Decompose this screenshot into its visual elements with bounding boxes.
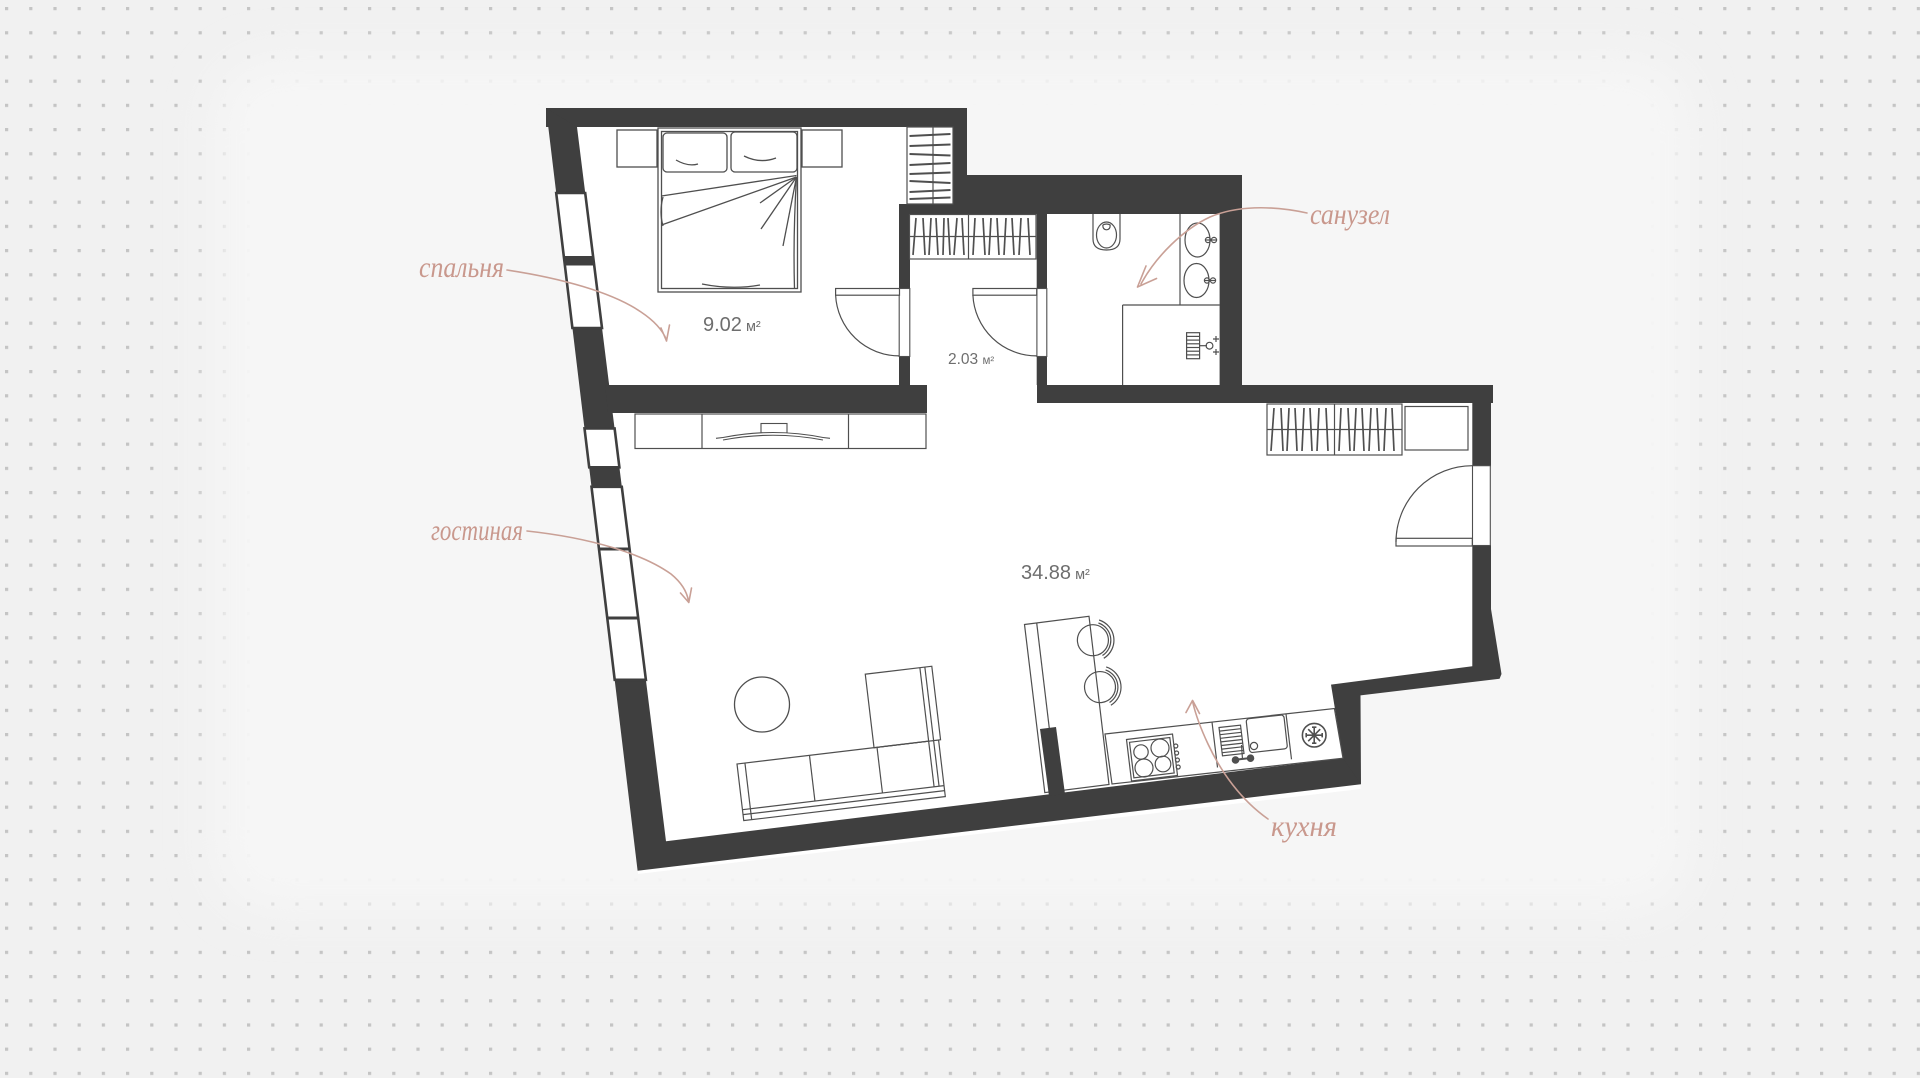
svg-text:гостиная: гостиная [431, 514, 523, 547]
svg-text:санузел: санузел [1310, 198, 1390, 231]
svg-text:спальня: спальня [419, 251, 504, 284]
svg-text:кухня: кухня [1271, 810, 1337, 843]
